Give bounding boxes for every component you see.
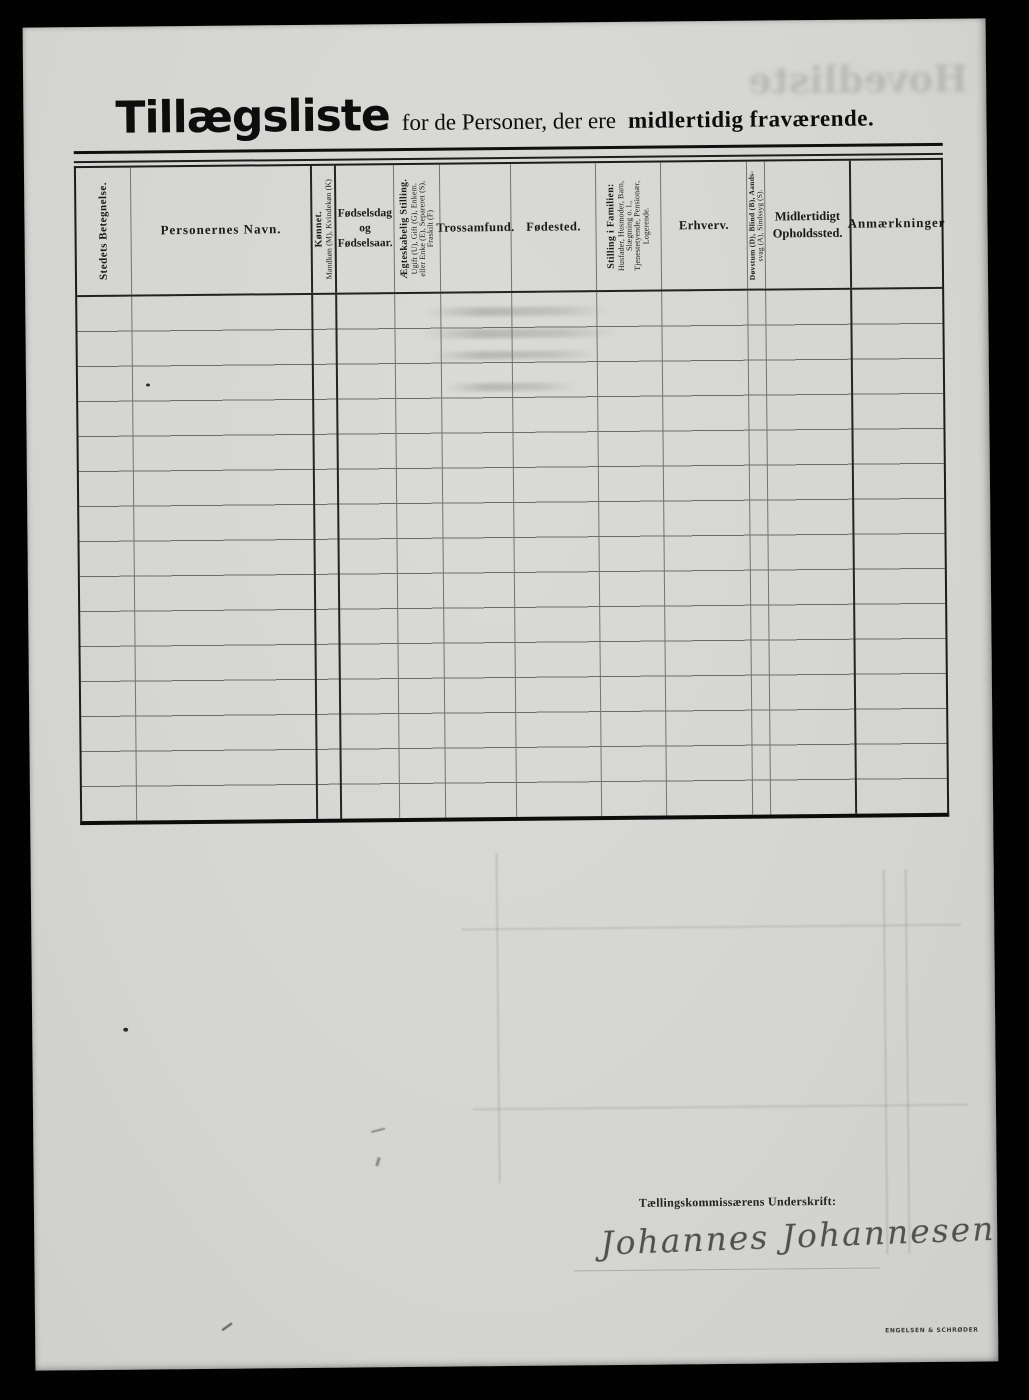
signature-label: Tællingskommissærens Underskrift: [639, 1194, 836, 1211]
body-column-fodested [512, 292, 602, 817]
body-column-trossamfund [441, 293, 517, 818]
header-label: Fødested. [526, 219, 581, 235]
header-label: Stedets Betegnelse. [97, 182, 110, 280]
bleedthrough-line [496, 853, 501, 1183]
bleedthrough-line [883, 869, 889, 1254]
body-column-midlertidigt-opholdssted [766, 290, 857, 815]
body-column-aegteskabelig-stilling [395, 294, 446, 818]
pencil-mark [375, 1157, 381, 1166]
ink-speck [123, 1028, 128, 1032]
table-body [77, 289, 947, 821]
body-column-fodselsdag [337, 294, 400, 819]
bleedthrough-line [461, 924, 961, 931]
header-label: Midlertidigt [772, 207, 842, 225]
census-table: Stedets Betegnelse. Personernes Navn. Kø… [74, 158, 949, 825]
header-dovstum: Døvstum (D), Blind (B), Aands- svag (A),… [747, 162, 766, 289]
ink-speck [146, 383, 150, 386]
bleedthrough-line [473, 1104, 968, 1111]
body-column-anmaerkninger [852, 289, 947, 814]
header-konnet: Kønnet. Mandkøn (M), Kvindekøn (K) [312, 166, 337, 293]
header-label: og [338, 221, 393, 236]
header-personernes-navn: Personernes Navn. [131, 166, 313, 295]
header-label: Fødselsaar. [338, 236, 393, 251]
body-column-personernes-navn [132, 295, 318, 821]
header-label: Erhverv. [679, 218, 729, 234]
printer-mark: ENGELSEN & SCHRØDER [885, 1327, 978, 1335]
header-label: Opholdssted. [773, 224, 843, 242]
header-sublabel: Fraskilt (F) [426, 178, 435, 278]
header-fodselsdag: Fødselsdag og Fødselsaar. [336, 165, 395, 293]
body-column-stedets-betegnelse [77, 297, 137, 822]
header-stedets-betegnelse: Stedets Betegnelse. [76, 168, 132, 296]
header-aegteskabelig-stilling: Ægteskabelig Stilling. Ugift (U), Gift (… [394, 165, 441, 292]
table-header-row: Stedets Betegnelse. Personernes Navn. Kø… [76, 160, 942, 297]
header-label: Fødselsdag [337, 206, 392, 221]
title-main: Tillægsliste [115, 90, 390, 144]
header-sublabel: Logerende. [642, 181, 651, 271]
header-fodested: Fødested. [511, 163, 597, 291]
page-title: Tillægsliste for de Personer, der ere mi… [115, 85, 955, 144]
header-trossamfund: Trossamfund. [440, 164, 512, 292]
body-column-stilling-i-familien [597, 292, 667, 817]
header-midlertidigt-opholdssted: Midlertidigt Opholdssted. [765, 161, 852, 289]
header-label: Anmærkninger [847, 215, 945, 232]
pencil-mark [371, 1128, 385, 1133]
signature-line [575, 1267, 880, 1271]
pencil-mark [222, 1322, 233, 1331]
scanned-census-page: { "page": { "title": { "main": "Tillægsl… [0, 0, 1029, 1400]
paper-sheet: Hovedliste Tillægsliste for de Personer,… [23, 18, 999, 1370]
header-label: Personernes Navn. [160, 222, 281, 239]
header-anmaerkninger: Anmærkninger [851, 160, 942, 288]
bleedthrough-line [905, 869, 911, 1254]
body-column-erhverv [662, 291, 753, 816]
header-label: Trossamfund. [436, 220, 514, 236]
header-erhverv: Erhverv. [661, 162, 748, 290]
title-middle: for de Personer, der ere [402, 108, 617, 136]
header-stilling-i-familien: Stilling i Familien: Husfader, Husmoder,… [596, 163, 662, 291]
title-emphasis: midlertidig fraværende. [628, 105, 874, 133]
header-sublabel: Mandkøn (M), Kvindekøn (K) [324, 179, 333, 279]
header-sublabel: svag (A), Sindssyg (S). [755, 170, 764, 280]
signature-handwriting: Johannes Johannesen [600, 1209, 996, 1263]
